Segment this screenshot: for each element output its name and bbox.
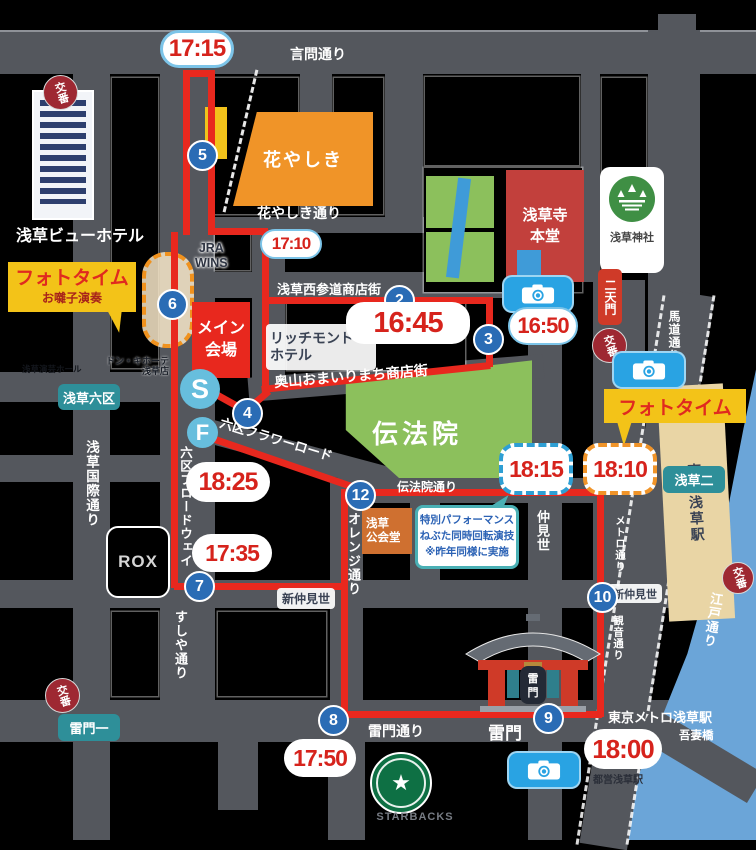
stop-12-number: 12 [352,487,370,505]
street-v-north2 [385,72,423,218]
asakusa-view-hotel-label: 浅草ビューホテル [16,222,144,246]
koban-text: 交番 [52,80,68,104]
kaminari1-text: 雷門一 [69,718,108,737]
rox-label: ROX [118,552,158,572]
note-line-3: ※昨年同様に実施 [418,545,516,561]
stop-3-number: 3 [484,331,493,349]
time-1815-text: 18:15 [509,456,563,483]
stop-6: 6 [157,289,188,320]
camera-glyph-icon [521,283,555,305]
note-line-2: ねぶた同時回転演技 [418,529,516,545]
stop-4: 4 [232,398,263,429]
svg-text:雷: 雷 [528,672,539,685]
start-marker: S [180,369,220,409]
camera-glyph-icon [632,359,666,381]
label-nakamise: 仲見世 [533,510,552,552]
town-label-asakusa2: 浅草二 [663,466,725,493]
shin-nakamise-west-text: 新仲見世 [282,590,330,607]
stop-6-number: 6 [168,296,177,314]
route-kototoi-turn [183,70,215,77]
starbucks-logo-icon: ★ [370,752,432,814]
finish-letter: F [196,420,209,446]
time-1710-text: 17:10 [272,234,310,254]
city-block-sensoji-north [425,77,579,165]
wins-text: WINS [195,256,228,271]
time-1810-text: 18:10 [593,456,647,483]
time-1735: 17:35 [192,534,272,572]
koban-badge-edo: 交番 [722,562,754,594]
koban-badge-sw: 交番 [45,678,80,713]
street-s-stub1 [218,742,258,810]
stop-10: 10 [587,582,618,613]
main-venue-label-1: メイン [192,318,250,340]
richmond-text-1: リッチモンド [270,330,354,347]
time-1715: 17:15 [160,30,234,68]
label-metro-dori: メトロ通り [613,515,628,573]
camera-icon-east [612,351,686,389]
shin-nakamise-east-text: 新仲見世 [613,586,657,602]
label-kototoi: 言問通り [290,44,346,64]
street-kototoi [0,30,756,74]
town-label-rokku: 浅草六区 [58,384,120,410]
koban-text: 交番 [730,566,746,590]
asakusa-jinja-badge: 浅草神社 [600,167,664,273]
phototime-left-subtitle: お囃子演奏 [42,291,102,305]
jra-text: JRA [195,241,228,256]
kokaido-label-2: 公会堂 [366,531,412,545]
performance-note: 特別パフォーマンス ねぶた同時回転演技 ※昨年同様に実施 [415,505,519,569]
asakusa-jinja-label: 浅草神社 [600,229,664,245]
label-kannon-dori: 観音通り [611,615,626,661]
starbucks-logo-ring: ★ [376,758,426,808]
nitenmon-text: 二天門 [604,279,616,315]
label-denboin-dori: 伝法院通り [397,478,457,495]
donki-text-2: 浅草店 [106,366,169,376]
camera-icon-south [507,751,581,789]
city-block [112,612,158,696]
denboin-label: 伝法院 [372,414,462,451]
stop-5-number: 5 [198,147,207,165]
asakusa-jinja-logo-icon [607,174,657,224]
stop-9-number: 9 [544,710,553,728]
camera-glyph-icon [527,759,561,781]
time-1650-text: 16:50 [517,313,568,339]
note-line-1: 特別パフォーマンス [418,513,516,529]
time-1645: 16:45 [346,302,470,344]
stop-10-number: 10 [594,589,612,607]
label-nishisando: 浅草西参道商店街 [277,279,381,298]
hanayashiki-label: 花やしき [233,146,373,172]
label-hanayashiki-dori: 花やしき通り [257,203,341,223]
rokku-text: 浅草六区 [63,388,115,407]
finish-marker: F [187,417,218,448]
donki-text-1: ドン・キホーテ [106,356,169,366]
time-1650: 16:50 [508,307,578,345]
label-kaminarimon: 雷門 [488,719,522,744]
label-kaminarimon-dori: 雷門通り [368,721,424,741]
sensoji-label-1: 浅草寺 [506,205,584,226]
label-shin-nakamise-west: 新仲見世 [277,588,335,609]
phototime-right-callout: フォトタイム [604,389,746,423]
phototime-right-title: フォトタイム [618,393,732,420]
time-1810: 18:10 [583,443,657,495]
label-azumabashi: 吾妻橋 [679,727,714,743]
town-label-kaminari1: 雷門一 [58,714,120,741]
time-1750: 17:50 [284,739,356,777]
richmond-text-2: ホテル [270,347,312,364]
time-1825: 18:25 [186,462,270,502]
kokaido-building: 浅草 公会堂 [362,508,412,554]
koban-badge-nw: 交番 [43,75,78,110]
stop-5: 5 [187,140,218,171]
stop-12: 12 [345,480,376,511]
stop-4-number: 4 [243,405,252,423]
kokaido-label-1: 浅草 [366,517,412,531]
donki-label: ドン・キホーテ 浅草店 [106,356,169,377]
time-1710: 17:10 [260,229,322,259]
phototime-left-title: フォトタイム [15,268,129,291]
main-venue-label-2: 会場 [192,340,250,362]
asakusa2-text: 浅草二 [674,470,713,489]
starbucks-label: STARBACKS [360,811,470,823]
city-block [218,612,326,696]
hanayashiki-building: 花やしき [233,112,373,206]
stop-9: 9 [533,703,564,734]
time-1735-text: 17:35 [205,540,259,567]
time-1800-text: 18:00 [592,734,654,765]
time-1715-text: 17:15 [169,35,225,63]
time-1645-text: 16:45 [373,307,442,340]
label-metro-station: 東京メトロ浅草駅 [608,707,712,726]
main-venue-building: メイン 会場 [192,302,250,378]
sensoji-label-2: 本堂 [506,226,584,247]
label-toei-station: 都営浅草駅 [593,771,643,786]
rox-building: ROX [106,526,170,598]
engei-hall-label: 浅草演芸ホール [22,363,82,375]
label-orange-dori: オレンジ通り [344,512,363,596]
time-1750-text: 17:50 [293,745,347,772]
nitenmon-label: 二天門 [598,269,622,325]
stop-7: 7 [184,571,215,602]
label-kokusai-dori: 浅草国際通り [81,440,101,527]
hotel-windows [40,100,86,204]
stop-8: 8 [318,705,349,736]
start-letter: S [191,374,209,405]
route-hanayashiki [208,228,268,235]
label-sushiya-dori: すしや通り [171,610,190,680]
stop-7-number: 7 [195,578,204,596]
koban-text: 交番 [54,683,70,707]
stop-3: 3 [473,324,504,355]
stop-8-number: 8 [329,712,338,730]
time-1825-text: 18:25 [199,468,258,497]
svg-text:門: 門 [528,686,539,699]
jra-wins-label: JRA WINS [195,241,228,271]
kaminarimon-gate-illustration: 雷 門 [458,608,608,714]
time-1800: 18:00 [584,729,662,769]
time-1815: 18:15 [499,443,573,495]
asakusa-parade-route-map: 浅草ビューホテル 花やしき 浅草寺 本堂 浅草神社 二天門 五重塔 伝法院 メイ… [0,0,756,840]
